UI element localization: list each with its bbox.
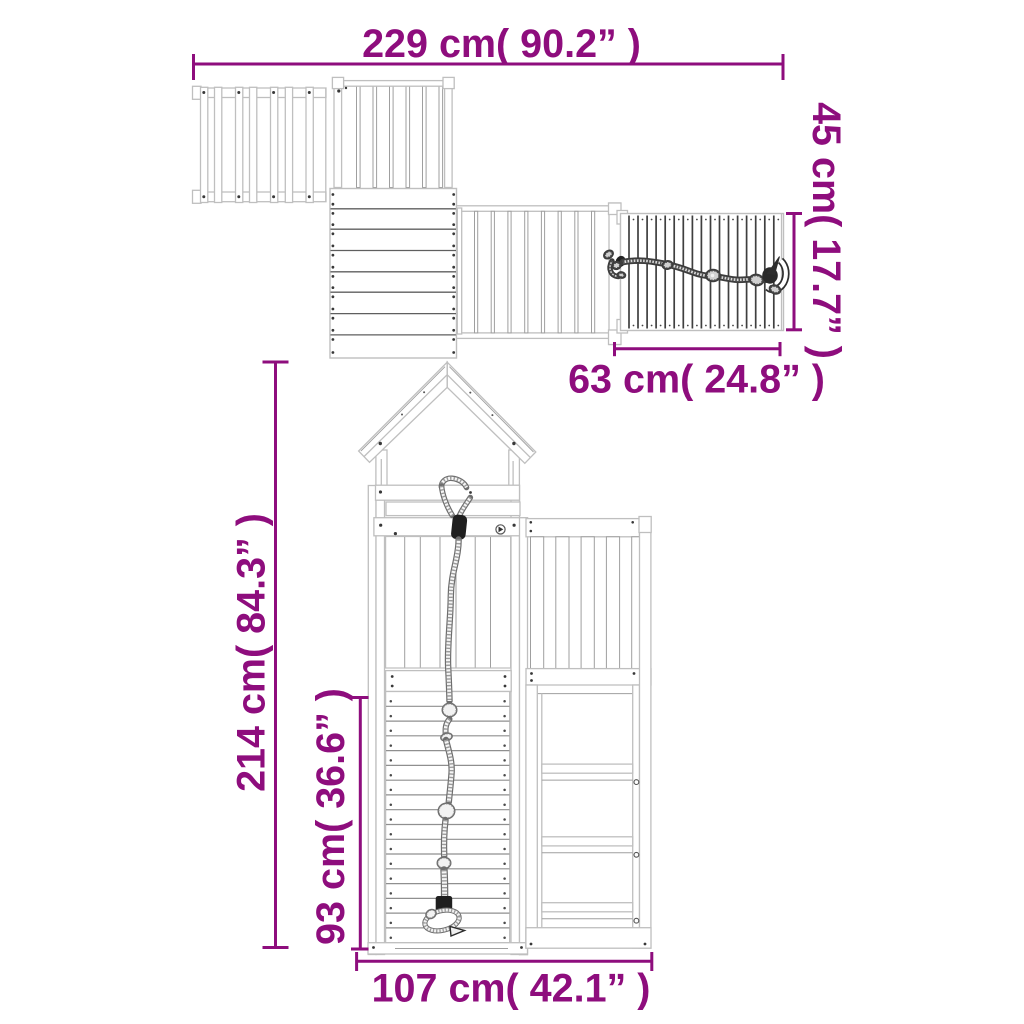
svg-text:229 cm( 90.2” ): 229 cm( 90.2” ) [362, 22, 641, 66]
svg-text:45 cm( 17.7” ): 45 cm( 17.7” ) [804, 102, 848, 359]
svg-text:93 cm( 36.6” ): 93 cm( 36.6” ) [309, 688, 353, 945]
svg-text:214 cm( 84.3” ): 214 cm( 84.3” ) [230, 513, 274, 792]
svg-text:107 cm( 42.1” ): 107 cm( 42.1” ) [372, 967, 651, 1011]
svg-text:63 cm( 24.8” ): 63 cm( 24.8” ) [568, 358, 825, 402]
